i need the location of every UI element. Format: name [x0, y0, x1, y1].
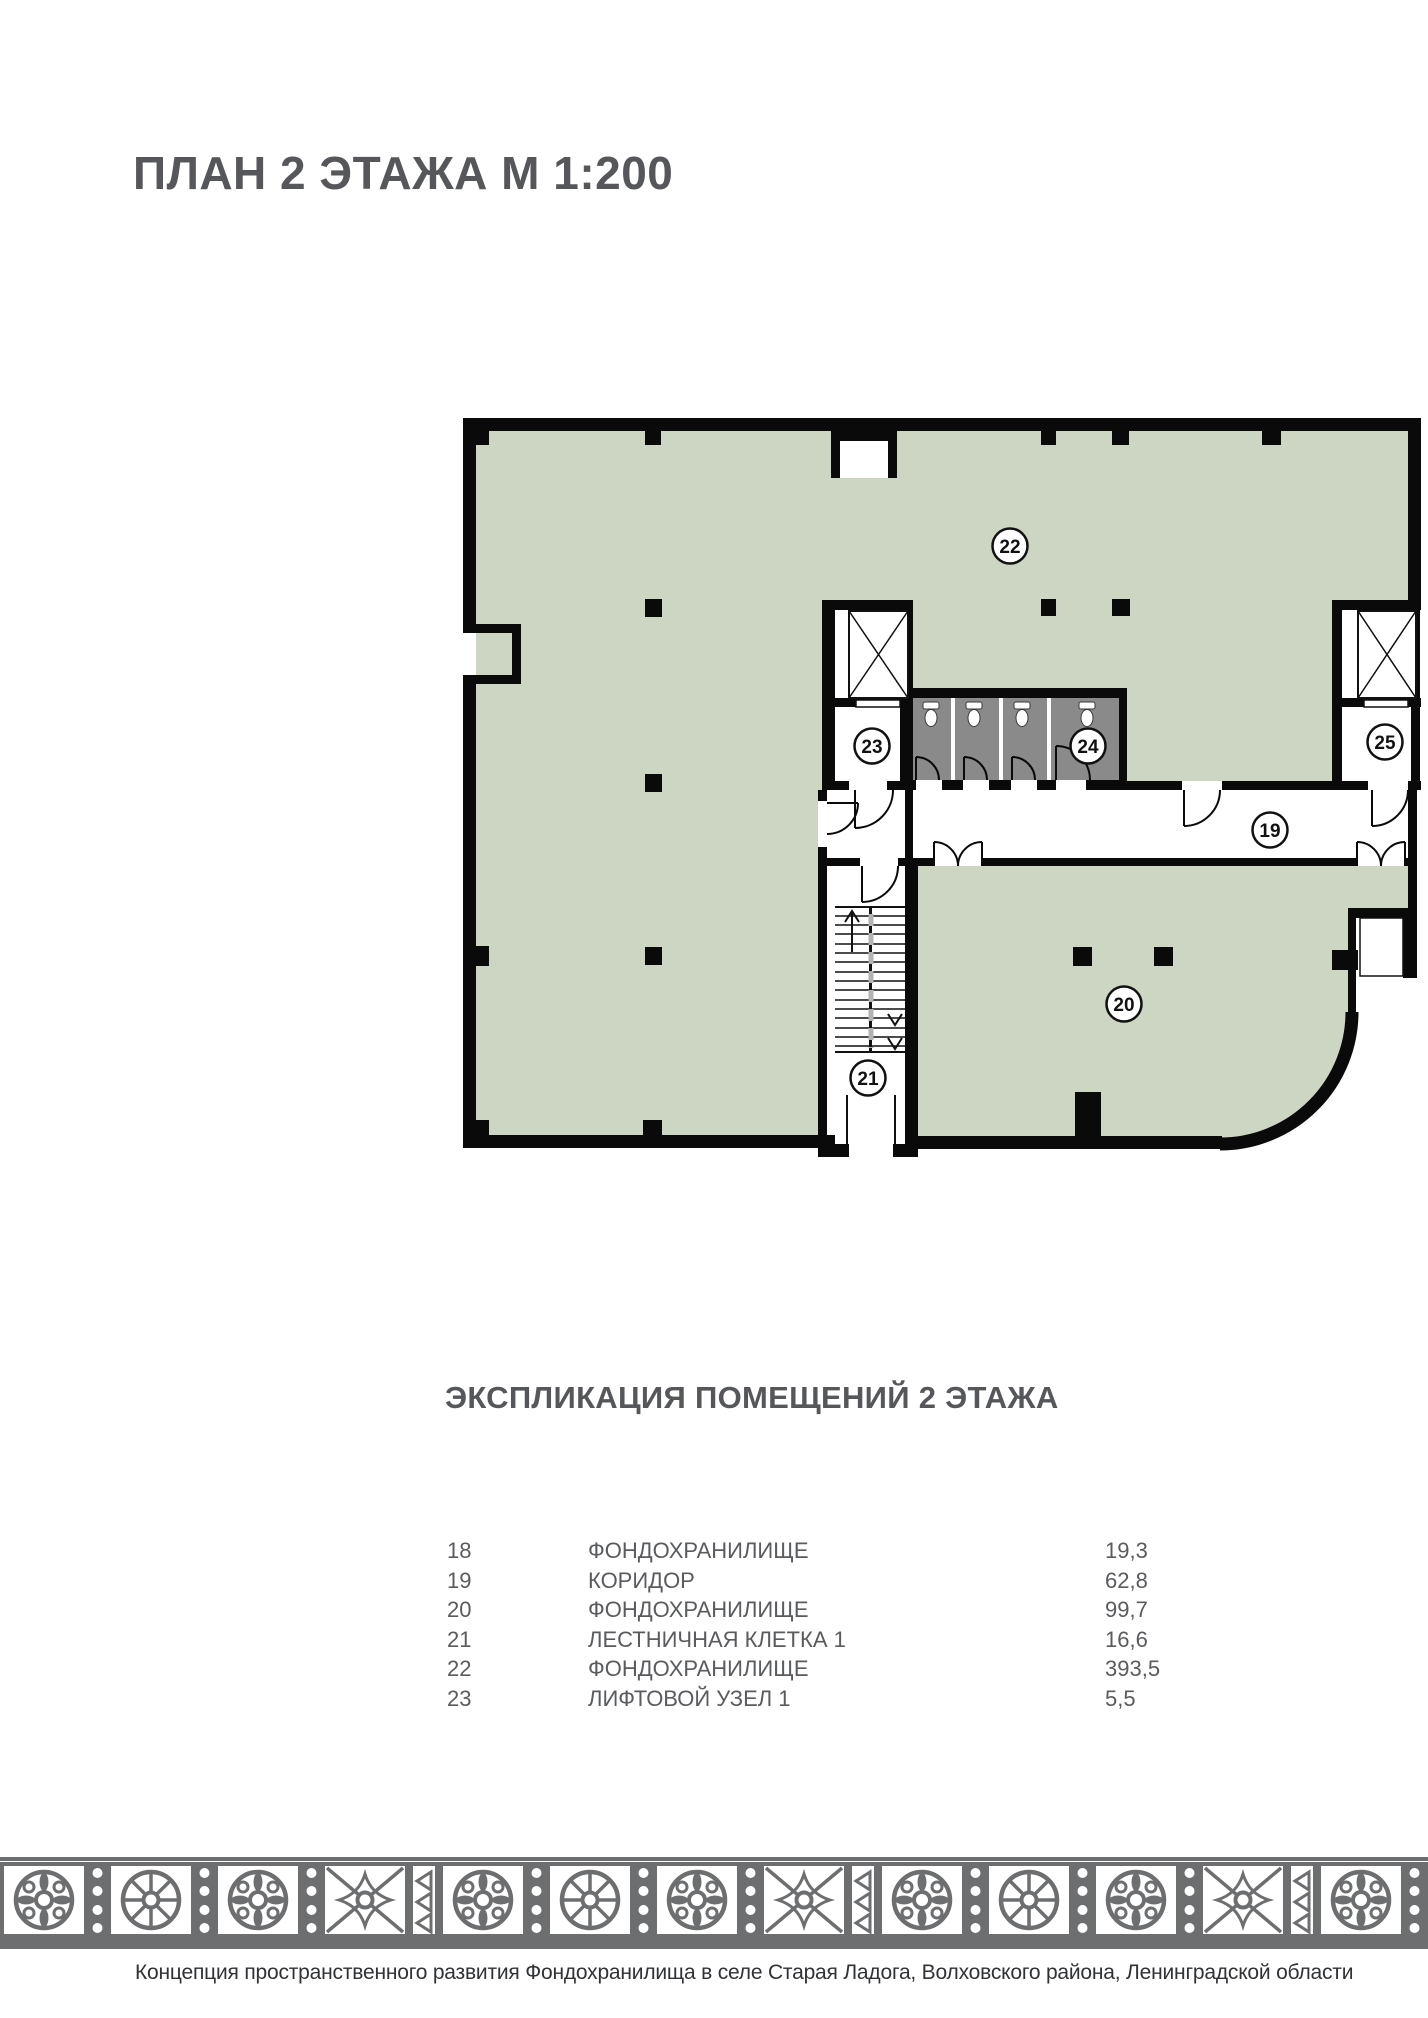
room-name: ЛЕСТНИЧНАЯ КЛЕТКА 1: [588, 1625, 1105, 1655]
ornament-border: [0, 1855, 1428, 1950]
room-label-25: 25: [1368, 725, 1403, 760]
svg-text:19: 19: [1259, 821, 1280, 842]
table-row: 20 ФОНДОХРАНИЛИЩЕ 99,7: [447, 1595, 1187, 1625]
room-area: 16,6: [1105, 1625, 1187, 1655]
table-row: 23 ЛИФТОВОЙ УЗЕЛ 1 5,5: [447, 1684, 1187, 1714]
svg-text:21: 21: [857, 1069, 879, 1090]
table-row: 18 ФОНДОХРАНИЛИЩЕ 19,3: [447, 1536, 1187, 1566]
room-area: 19,3: [1105, 1536, 1187, 1566]
room-area: 5,5: [1105, 1684, 1187, 1714]
svg-text:23: 23: [861, 737, 882, 758]
drawing-sheet: ПЛАН 2 ЭТАЖА М 1:200: [0, 0, 1428, 2018]
room-area: 393,5: [1105, 1654, 1187, 1684]
room-area: 99,7: [1105, 1595, 1187, 1625]
room-name: ФОНДОХРАНИЛИЩЕ: [588, 1536, 1105, 1566]
room-number: 18: [447, 1536, 588, 1566]
room-name: ФОНДОХРАНИЛИЩЕ: [588, 1595, 1105, 1625]
elevator-23-shaft: [835, 610, 908, 707]
room-label-22: 22: [993, 529, 1028, 564]
floor-plan: 22 23 24 25 19 20 21: [430, 390, 1428, 1180]
explication-table: 18 ФОНДОХРАНИЛИЩЕ 19,3 19 КОРИДОР 62,8 2…: [447, 1536, 1187, 1713]
exterior-recess: [1360, 918, 1403, 976]
room-number: 19: [447, 1566, 588, 1596]
room-label-21: 21: [851, 1061, 886, 1096]
room-name: ФОНДОХРАНИЛИЩЕ: [588, 1654, 1105, 1684]
room-number: 22: [447, 1654, 588, 1684]
room-name: ЛИФТОВОЙ УЗЕЛ 1: [588, 1684, 1105, 1714]
room-label-23: 23: [855, 729, 890, 764]
room-number: 20: [447, 1595, 588, 1625]
page-title: ПЛАН 2 ЭТАЖА М 1:200: [133, 146, 673, 200]
room-label-24: 24: [1071, 729, 1106, 764]
staircase-21: [835, 906, 905, 1144]
room-area: 62,8: [1105, 1566, 1187, 1596]
room-label-19: 19: [1253, 813, 1288, 848]
svg-text:22: 22: [999, 537, 1020, 558]
explication-title: ЭКСПЛИКАЦИЯ ПОМЕЩЕНИЙ 2 ЭТАЖА: [445, 1380, 1059, 1416]
room-number: 23: [447, 1684, 588, 1714]
elevator-25-shaft: [1342, 610, 1416, 707]
table-row: 19 КОРИДОР 62,8: [447, 1566, 1187, 1596]
room-label-20: 20: [1107, 987, 1142, 1022]
svg-text:20: 20: [1113, 995, 1134, 1016]
svg-text:25: 25: [1374, 733, 1396, 754]
room-number: 21: [447, 1625, 588, 1655]
table-row: 21 ЛЕСТНИЧНАЯ КЛЕТКА 1 16,6: [447, 1625, 1187, 1655]
table-row: 22 ФОНДОХРАНИЛИЩЕ 393,5: [447, 1654, 1187, 1684]
room-name: КОРИДОР: [588, 1566, 1105, 1596]
svg-text:24: 24: [1077, 737, 1099, 758]
footer-caption: Концепция пространственного развития Фон…: [135, 1961, 1353, 1985]
